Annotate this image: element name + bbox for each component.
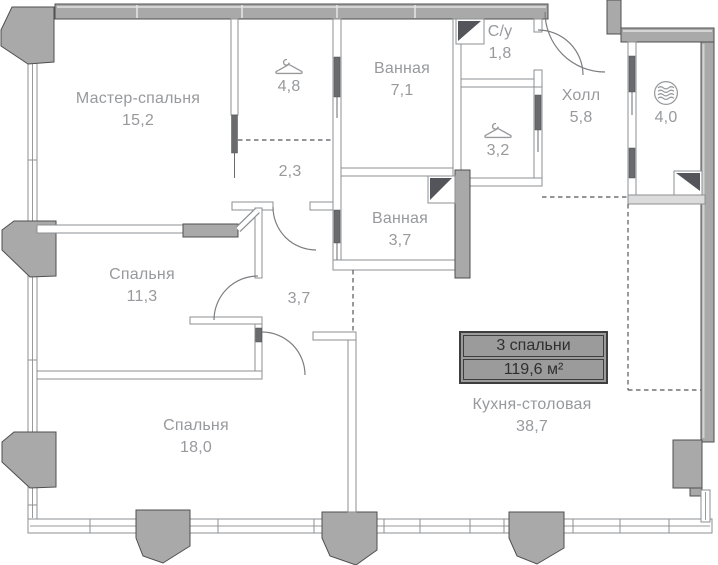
room-label-utility: 4,0 (634, 79, 698, 129)
room-label-master-bedroom: Мастер-спальня 15,2 (38, 88, 238, 132)
waves-icon (652, 79, 680, 107)
room-label-wc: С/у 1,8 (464, 21, 536, 65)
room-label-hall: Холл 5,8 (538, 85, 624, 129)
room-label-wardrobe-master: 4,8 (262, 52, 316, 98)
floor-plan: Мастер-спальня 15,2 4,8 Ванная 7,1 С/у 1… (0, 0, 718, 565)
badge-rooms-count: 3 спальни (463, 335, 604, 357)
hanger-icon (272, 52, 306, 76)
hanger-icon (481, 116, 515, 140)
badge-total-area: 119,6 м² (463, 359, 604, 381)
room-label-wardrobe-hall: 3,2 (470, 116, 526, 162)
room-label-bathroom-second: Ванная 3,7 (344, 208, 456, 252)
room-label-corridor-lower: 3,7 (271, 288, 327, 310)
room-label-bathroom-main: Ванная 7,1 (346, 58, 458, 102)
plan-summary-badge: 3 спальни 119,6 м² (459, 331, 608, 384)
room-label-bedroom-third: Спальня 18,0 (114, 415, 278, 459)
room-label-bedroom-second: Спальня 11,3 (60, 264, 224, 308)
room-label-kitchen-dining: Кухня-столовая 38,7 (428, 394, 636, 438)
room-label-corridor-upper: 2,3 (262, 161, 318, 183)
